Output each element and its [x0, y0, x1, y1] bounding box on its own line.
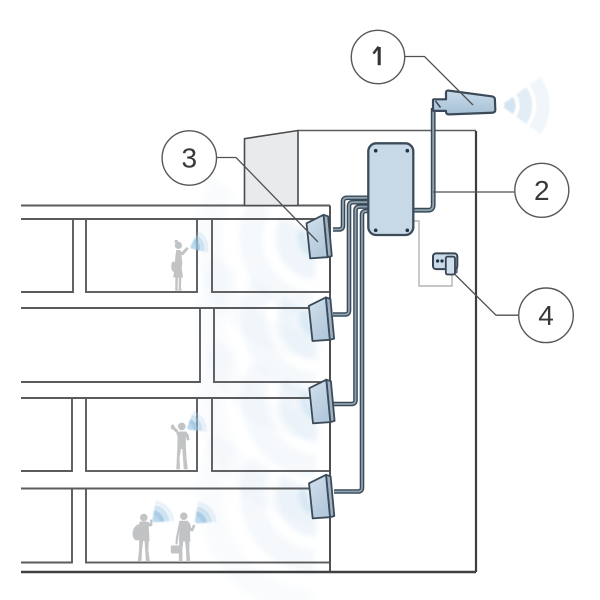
svg-text:3: 3	[182, 143, 198, 174]
svg-text:2: 2	[534, 175, 550, 206]
svg-text:4: 4	[538, 300, 554, 331]
